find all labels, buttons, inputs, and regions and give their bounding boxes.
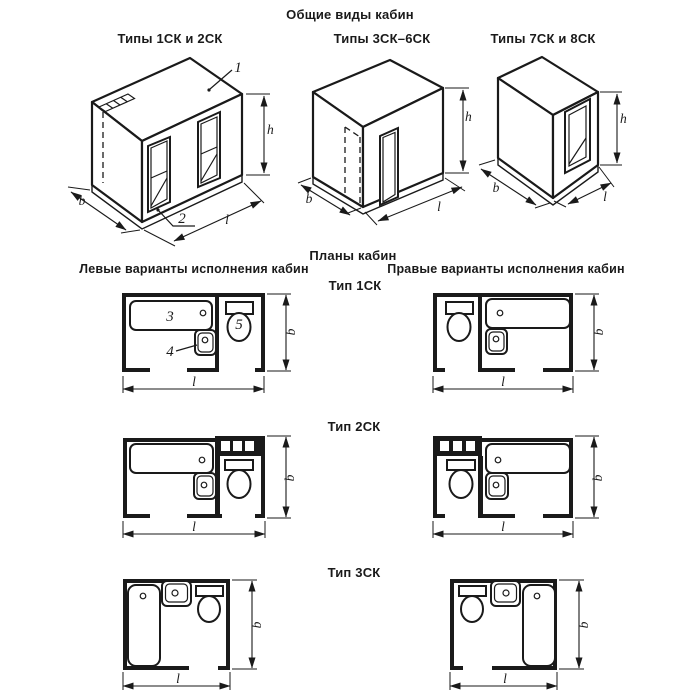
dimension-l: l: [123, 374, 264, 393]
svg-text:b: b: [306, 191, 313, 206]
view-caption-3sk-6sk: Типы 3СК–6СК: [334, 31, 431, 46]
dimension-b: b: [575, 436, 605, 518]
plan-3sk-right: b l: [420, 576, 605, 700]
door-opening-1: [148, 137, 170, 212]
door-opening: [380, 128, 398, 205]
dimension-l: l: [433, 374, 573, 393]
svg-text:h: h: [620, 111, 627, 126]
sink: [194, 473, 216, 499]
svg-text:l: l: [603, 189, 607, 204]
bathtub: 3: [130, 301, 212, 330]
svg-text:b: b: [282, 474, 297, 481]
svg-text:2: 2: [178, 211, 186, 227]
svg-text:b: b: [590, 474, 605, 481]
bathtub: [130, 444, 213, 473]
dimension-l: l: [450, 671, 557, 690]
svg-text:l: l: [437, 199, 441, 214]
svg-text:b: b: [576, 621, 591, 628]
toilet: [446, 302, 473, 341]
svg-text:b: b: [591, 328, 606, 335]
door-opening-2: [198, 112, 220, 187]
dimension-h: h: [600, 92, 627, 165]
dimension-b: b: [232, 580, 264, 669]
type-label-1sk: Тип 1СК: [329, 278, 382, 293]
callout-3: 3: [165, 309, 174, 325]
sink: [162, 581, 191, 606]
svg-text:h: h: [267, 122, 274, 137]
view-caption-1sk-2sk: Типы 1СК и 2СК: [117, 31, 222, 46]
dimension-l: l: [123, 519, 265, 538]
dimension-b: b: [559, 580, 591, 669]
svg-text:l: l: [192, 519, 196, 534]
plan-1sk-left: 3 4 5 b l: [98, 290, 303, 400]
bathtub: [128, 585, 160, 666]
toilet: [459, 586, 486, 622]
svg-text:l: l: [503, 671, 507, 686]
toilet: [447, 460, 475, 498]
svg-text:b: b: [79, 193, 86, 208]
toilet: 5: [226, 302, 253, 341]
svg-text:l: l: [176, 671, 180, 686]
dimension-l: l: [123, 671, 230, 690]
dimension-b: b: [267, 294, 298, 371]
isometric-view-3sk-6sk: h l b: [283, 55, 478, 235]
vent-block: [433, 436, 482, 456]
page: { "figure": { "title": "Общие виды кабин…: [0, 0, 700, 700]
dimension-l: l: [433, 519, 573, 538]
sink: [486, 329, 507, 354]
vent-block: [215, 436, 265, 456]
view-caption-7sk-8sk: Типы 7СК и 8СК: [490, 31, 595, 46]
right-variants-header: Правые варианты исполнения кабин: [387, 262, 624, 276]
sink: [486, 473, 508, 499]
type-label-2sk: Тип 2СК: [328, 419, 381, 434]
svg-text:b: b: [249, 621, 264, 628]
svg-text:l: l: [192, 374, 196, 389]
svg-text:b: b: [493, 180, 500, 195]
isometric-view-7sk-8sk: h l b: [462, 55, 652, 230]
plan-1sk-right: b l: [400, 290, 612, 400]
sink: [491, 581, 520, 606]
svg-text:l: l: [501, 519, 505, 534]
dimension-h: h: [246, 94, 274, 175]
callout-4: 4: [166, 344, 174, 360]
isometric-view-1sk-2sk: 1 2 h l b: [55, 50, 290, 260]
type-label-3sk: Тип 3СК: [328, 565, 381, 580]
plans-title: Планы кабин: [309, 248, 396, 263]
plan-3sk-left: b l: [98, 576, 283, 700]
svg-text:l: l: [225, 212, 229, 227]
door-opening: [565, 99, 590, 173]
sink: 4: [166, 330, 216, 360]
bathtub: [486, 444, 570, 473]
toilet: [196, 586, 223, 622]
callout-5: 5: [235, 317, 243, 333]
dimension-b: b: [575, 294, 606, 371]
plan-2sk-right: b l: [400, 433, 612, 545]
figure-title: Общие виды кабин: [286, 7, 414, 22]
plan-2sk-left: b l: [98, 433, 303, 545]
dimension-b: b: [267, 436, 297, 518]
toilet: [225, 460, 253, 498]
left-variants-header: Левые варианты исполнения кабин: [79, 262, 308, 276]
svg-text:1: 1: [234, 60, 242, 76]
svg-text:l: l: [501, 374, 505, 389]
svg-text:b: b: [283, 328, 298, 335]
bathtub: [486, 299, 570, 328]
bathtub: [523, 585, 555, 666]
